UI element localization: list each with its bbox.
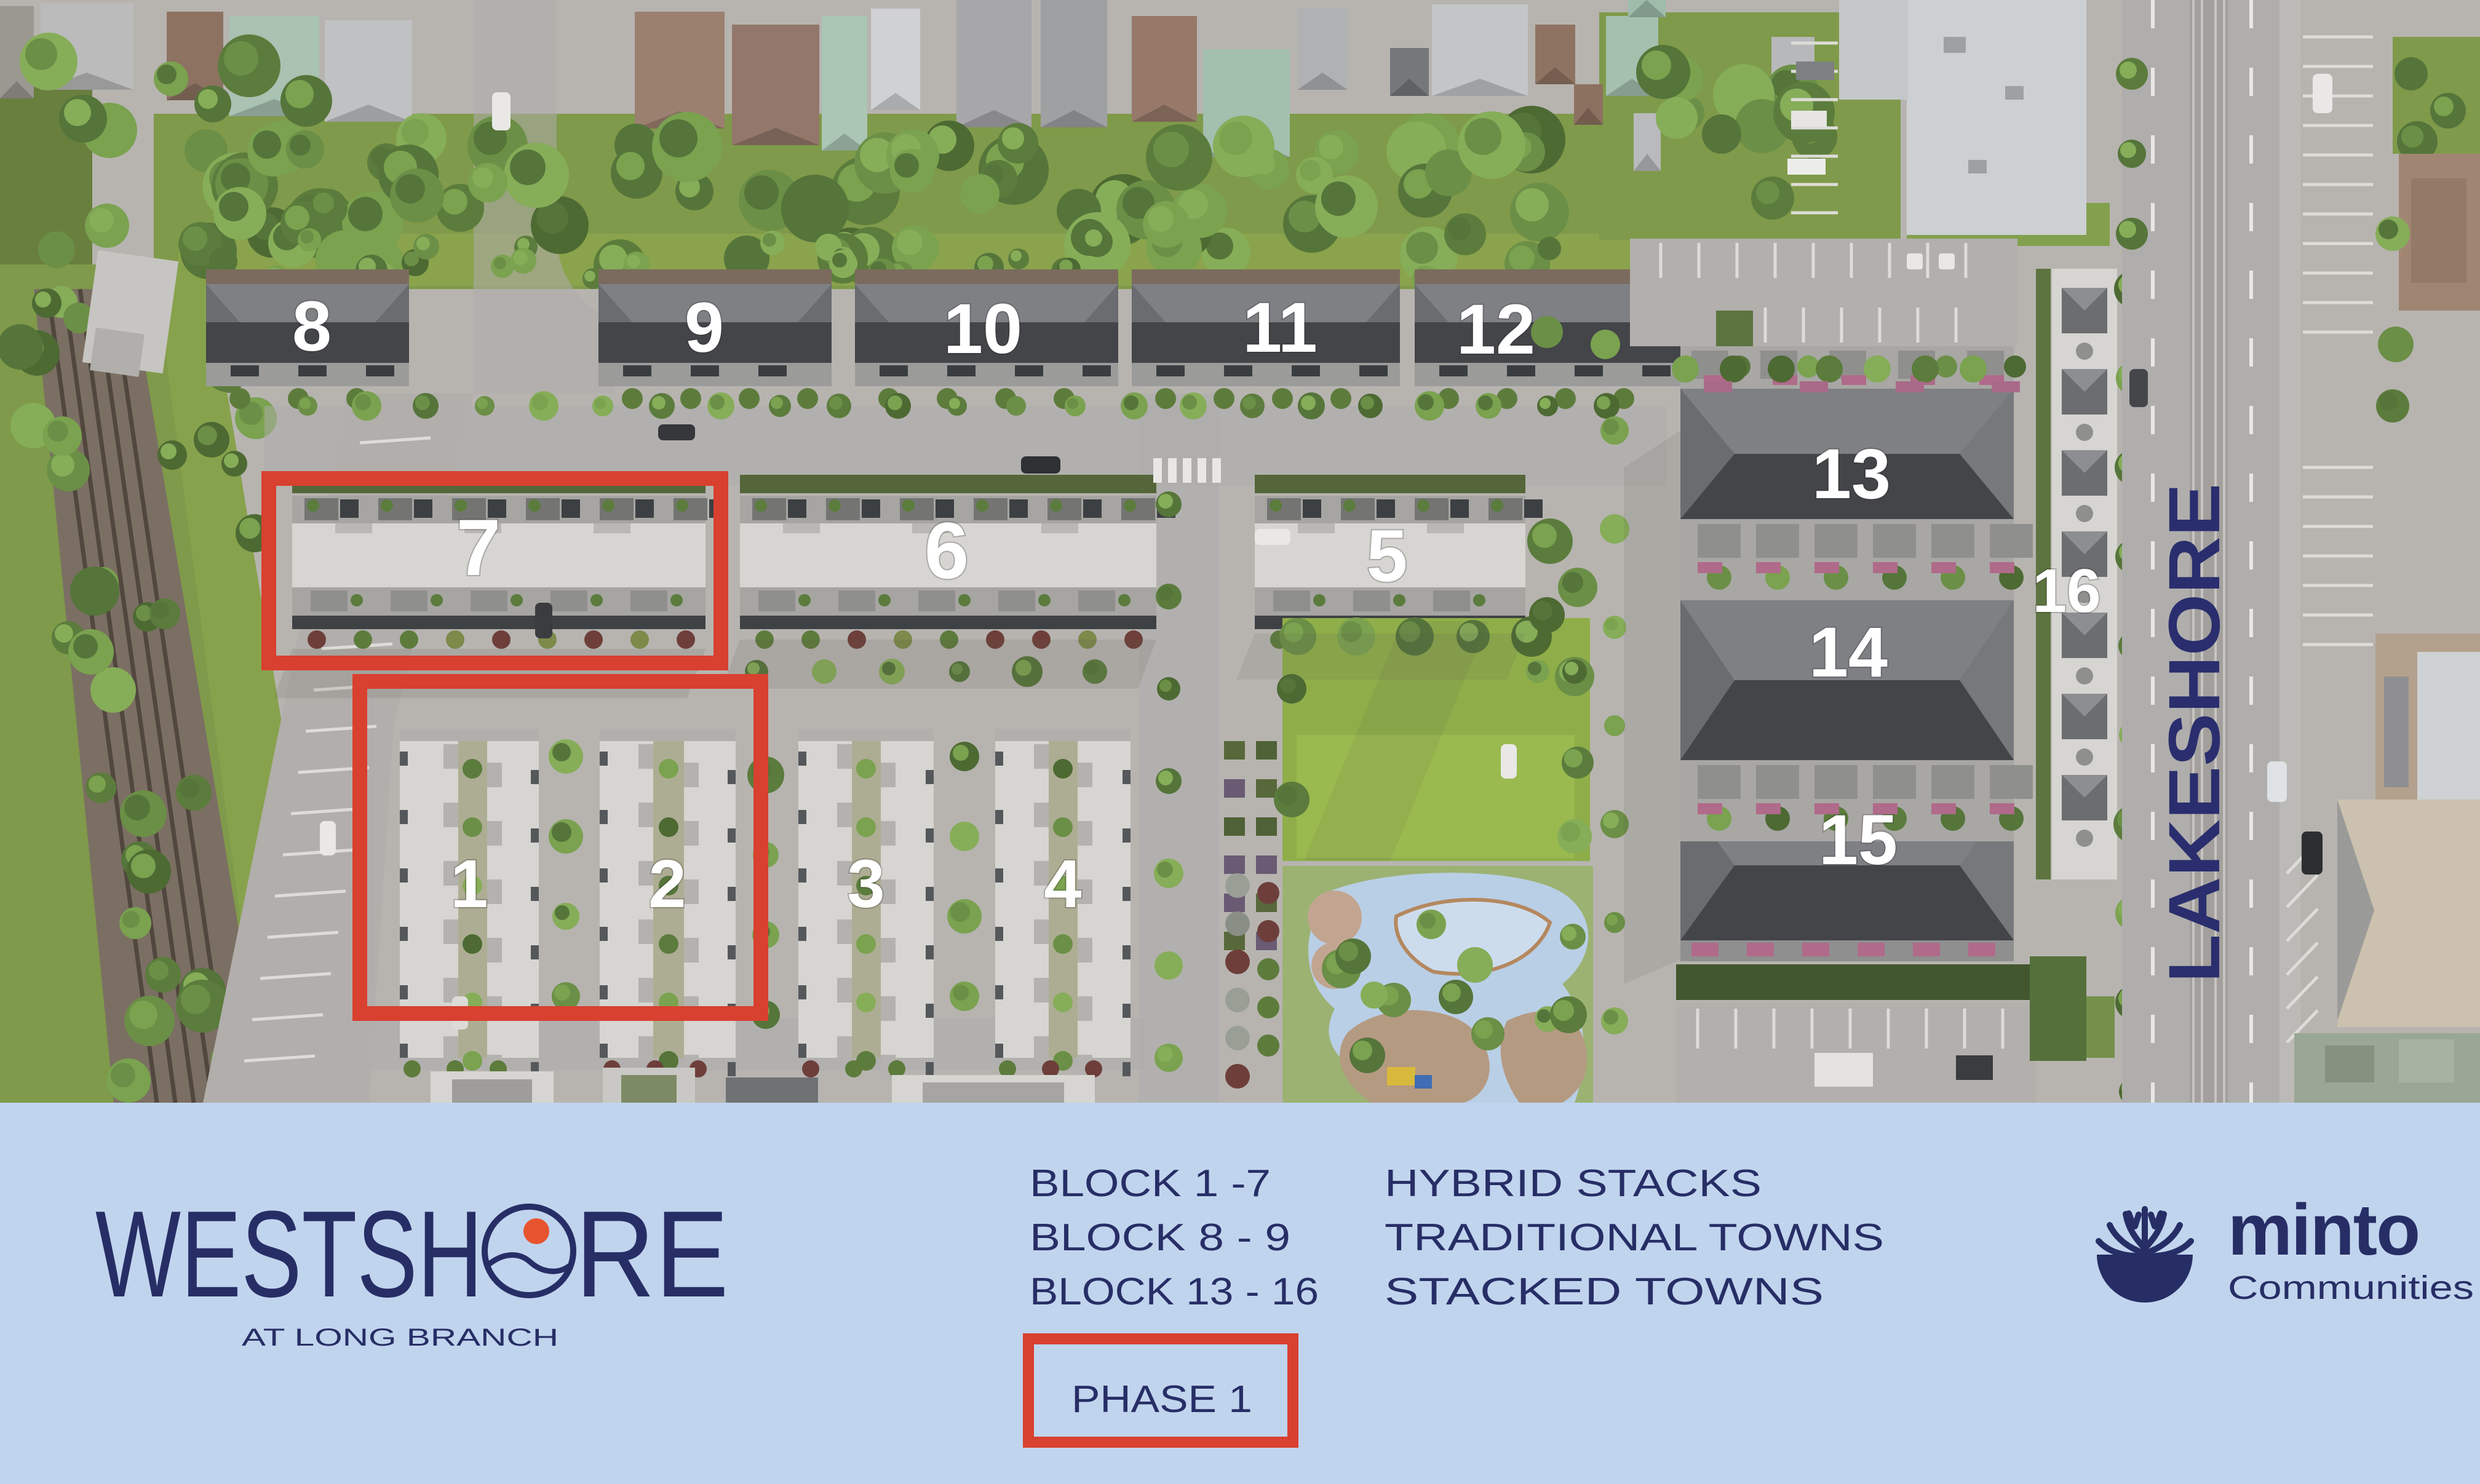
svg-text:16: 16 xyxy=(2032,557,2100,625)
svg-text:6: 6 xyxy=(924,506,969,595)
svg-text:8: 8 xyxy=(292,287,332,366)
svg-text:STACKED TOWNS: STACKED TOWNS xyxy=(1385,1271,1824,1313)
svg-text:HYBRID STACKS: HYBRID STACKS xyxy=(1385,1162,1762,1205)
svg-text:11: 11 xyxy=(1242,288,1317,367)
svg-text:15: 15 xyxy=(1819,801,1898,879)
svg-text:BLOCK 8 - 9: BLOCK 8 - 9 xyxy=(1030,1216,1290,1259)
svg-text:10: 10 xyxy=(944,290,1022,368)
svg-text:TRADITIONAL TOWNS: TRADITIONAL TOWNS xyxy=(1385,1216,1884,1259)
svg-text:minto: minto xyxy=(2228,1189,2419,1271)
svg-text:13: 13 xyxy=(1812,435,1891,514)
svg-text:9: 9 xyxy=(685,288,724,367)
svg-text:AT LONG BRANCH: AT LONG BRANCH xyxy=(242,1324,558,1351)
svg-text:14: 14 xyxy=(1809,613,1888,692)
svg-text:LAKESHORE: LAKESHORE xyxy=(2154,483,2235,983)
svg-text:RE: RE xyxy=(575,1186,729,1323)
svg-text:2: 2 xyxy=(648,846,686,922)
svg-text:1: 1 xyxy=(450,846,488,922)
svg-text:BLOCK 1 -7: BLOCK 1 -7 xyxy=(1030,1162,1271,1205)
svg-text:PHASE 1: PHASE 1 xyxy=(1071,1378,1252,1421)
svg-text:4: 4 xyxy=(1044,846,1081,922)
svg-text:WESTSH: WESTSH xyxy=(95,1186,483,1323)
svg-text:7: 7 xyxy=(456,502,501,592)
svg-text:12: 12 xyxy=(1457,290,1535,369)
svg-text:3: 3 xyxy=(847,846,884,922)
svg-text:Communities: Communities xyxy=(2228,1269,2474,1306)
svg-text:5: 5 xyxy=(1367,515,1408,597)
svg-text:BLOCK 13 - 16: BLOCK 13 - 16 xyxy=(1030,1271,1319,1313)
